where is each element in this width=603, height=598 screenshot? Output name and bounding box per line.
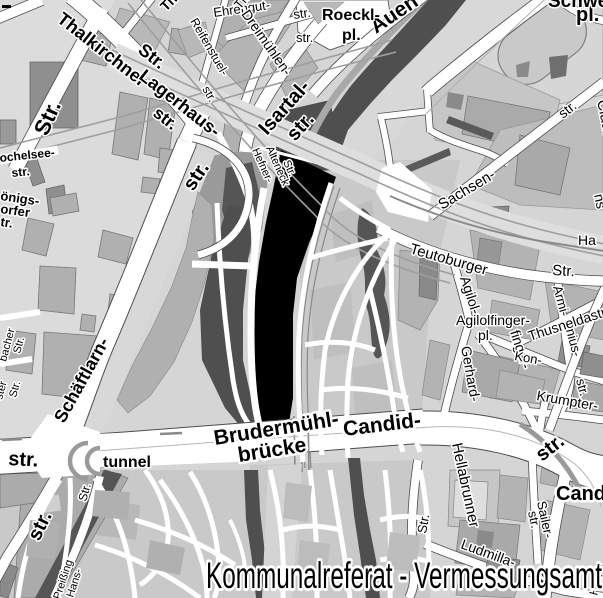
- svg-text:str.: str.: [296, 30, 313, 45]
- svg-text:Cand: Cand: [556, 483, 603, 505]
- svg-text:tr.: tr.: [0, 214, 14, 231]
- svg-text:str.: str.: [11, 164, 30, 180]
- svg-text:Str.: Str.: [552, 262, 575, 280]
- svg-text:Schwe: Schwe: [548, 0, 603, 12]
- svg-text:str.: str.: [8, 448, 39, 472]
- svg-text:str.: str.: [292, 5, 311, 22]
- svg-text:Agilolfinger-: Agilolfinger-: [456, 312, 530, 328]
- svg-text:tunnel: tunnel: [103, 454, 151, 471]
- svg-text:Ha: Ha: [578, 232, 596, 248]
- svg-text:Roeckl-: Roeckl-: [322, 7, 380, 24]
- svg-text:pl.: pl.: [478, 327, 493, 343]
- svg-text:Kommunalreferat - Vermessungsa: Kommunalreferat - Vermessungsamt: [206, 555, 602, 596]
- svg-text:pl.: pl.: [342, 27, 361, 44]
